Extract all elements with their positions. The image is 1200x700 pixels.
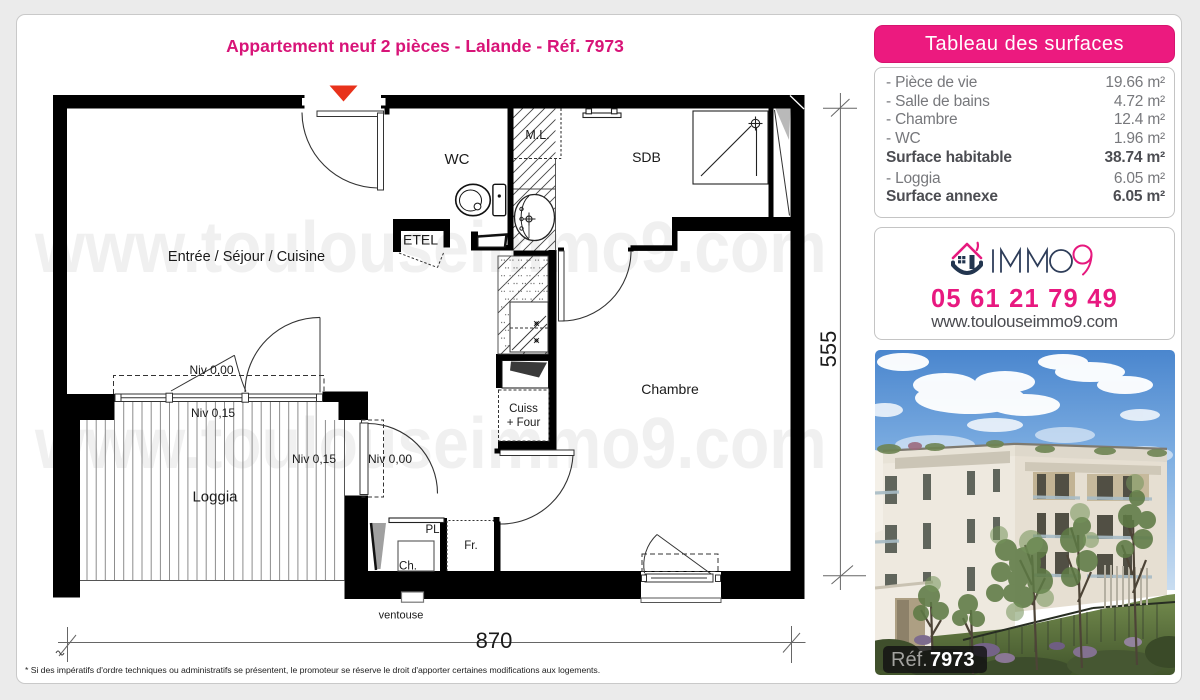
svg-text:ventouse: ventouse [379, 610, 424, 622]
svg-text:SDB: SDB [632, 149, 661, 165]
svg-text:Loggia: Loggia [192, 489, 238, 506]
svg-text:Niv 0,00: Niv 0,00 [368, 452, 412, 466]
svg-text:Chambre: Chambre [641, 381, 699, 397]
svg-text:Niv 0,15: Niv 0,15 [292, 452, 336, 466]
svg-text:Niv 0,15: Niv 0,15 [191, 406, 235, 420]
svg-text:WC: WC [445, 151, 470, 168]
svg-text:Réf.: Réf. [891, 649, 928, 671]
svg-text:Fr.: Fr. [464, 540, 477, 552]
svg-text:7973: 7973 [930, 649, 975, 671]
svg-text:Niv 0,00: Niv 0,00 [189, 363, 233, 377]
svg-text:Entrée / Séjour / Cuisine: Entrée / Séjour / Cuisine [168, 249, 325, 265]
svg-text:870: 870 [476, 628, 513, 653]
svg-text:Cuiss: Cuiss [509, 403, 538, 415]
svg-text:+ Four: + Four [507, 417, 541, 429]
svg-text:ETEL: ETEL [403, 232, 438, 248]
svg-text:Ch.: Ch. [399, 561, 417, 573]
svg-text:M.L.: M.L. [525, 128, 549, 142]
svg-text:555: 555 [816, 331, 841, 368]
svg-text:PL: PL [425, 524, 440, 536]
